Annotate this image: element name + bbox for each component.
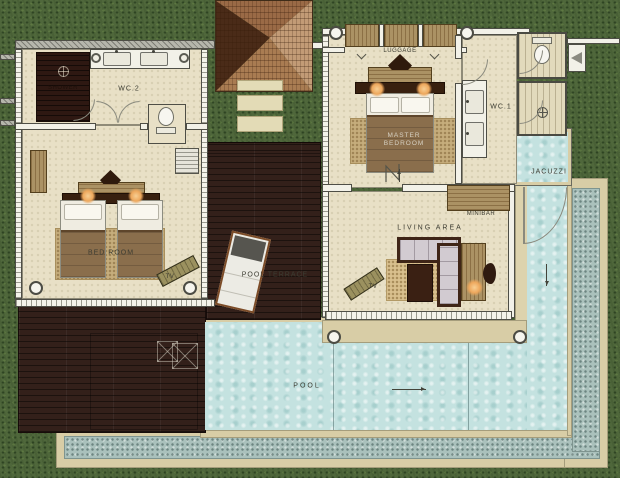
stepping-stone [237, 116, 283, 132]
sink-icon [140, 52, 168, 66]
toilet-tank [532, 37, 552, 44]
armchair [483, 263, 496, 284]
pool-lane-line [468, 343, 469, 430]
pillow [64, 204, 102, 220]
column [183, 281, 197, 295]
wall-divider [455, 83, 462, 184]
floor-plan: WC.2 SHOWER BED ROOM TV POOL TERRACE POO… [0, 0, 620, 478]
deck-hatch-mark [172, 343, 198, 369]
room-label-jacuzzi: JACUZZI [531, 169, 567, 176]
pavilion-roof [215, 0, 313, 92]
boundary-wall-stub [0, 98, 15, 104]
pebble-border-right [572, 188, 600, 452]
wall-segment [322, 47, 345, 53]
deck-step-line [207, 153, 320, 154]
sofa-side [437, 243, 461, 307]
wardrobe [423, 24, 457, 47]
room-label-master-bedroom: MASTER BEDROOM [376, 132, 432, 148]
room-label-bedroom: BED ROOM [88, 250, 134, 257]
window-wall-east [201, 49, 208, 299]
column [29, 281, 43, 295]
window-wall-west [322, 191, 329, 318]
faucet-icon [152, 50, 155, 53]
pool-coping-arm-right [567, 182, 572, 436]
pillow [370, 97, 399, 113]
room-label-living-area: LIVING AREA [397, 225, 463, 232]
pool-coping-bottom [200, 430, 572, 438]
bedside-lamp-icon [416, 81, 432, 97]
room-label-wc1: WC.1 [490, 104, 512, 111]
window-wall-west [322, 35, 329, 188]
pillow [401, 97, 430, 113]
room-label-pool: POOL [293, 383, 320, 390]
wall-north [15, 40, 215, 49]
column [460, 26, 474, 40]
pillow [121, 204, 159, 220]
wall-divider [322, 184, 352, 192]
pool-lane-line [333, 343, 334, 430]
table-lamp-icon [466, 279, 483, 296]
faucet-icon [466, 132, 469, 135]
living-terrace-edge [322, 320, 527, 343]
pool-water [205, 322, 327, 430]
pebble-border-bottom [64, 436, 600, 459]
room-label-minibar: MINIBAR [467, 211, 496, 217]
faucet-icon [115, 50, 118, 53]
wardrobe [384, 24, 418, 47]
bedside-lamp-icon [128, 188, 144, 204]
lounger-seam [220, 289, 255, 298]
toilet-icon [158, 107, 174, 126]
minibar-counter [447, 185, 510, 211]
wardrobe [345, 24, 379, 47]
boundary-wall-stub [0, 120, 15, 126]
flow-arrow-down [546, 264, 547, 286]
bedside-lamp-icon [369, 81, 385, 97]
shower-drain-icon [58, 66, 69, 77]
label-tv-bedroom: TV [166, 274, 175, 280]
lounger-headrest [231, 235, 267, 262]
stepping-stone [237, 80, 283, 91]
room-label-wc2: WC.2 [118, 86, 140, 93]
direction-arrow-up [399, 169, 400, 182]
faucet-icon [466, 100, 469, 103]
luggage-rack [175, 148, 199, 174]
column [329, 26, 343, 40]
wall-divider [140, 123, 148, 130]
wall-divider [15, 123, 96, 130]
wall-divider [186, 123, 208, 130]
column [513, 330, 527, 344]
vanity-knob [179, 53, 189, 63]
bedside-lamp-icon [80, 188, 96, 204]
bench [30, 150, 47, 193]
flow-arrow-right [392, 389, 426, 390]
boundary-wall-stub [0, 54, 15, 60]
wall-divider [455, 35, 462, 59]
stepping-stone [237, 95, 283, 111]
coffee-table [407, 264, 433, 302]
window-wall-south [15, 299, 215, 307]
room-label-luggage: LUGGAGE [383, 48, 416, 54]
window-wall-west [15, 49, 22, 299]
window-wall-south [325, 311, 512, 320]
column [327, 330, 341, 344]
room-label-pool-terrace: POOL TERRACE [242, 272, 308, 279]
label-tv-living: TV [369, 284, 378, 290]
toilet-tank [156, 127, 176, 134]
sink-icon [103, 52, 131, 66]
pool-door-leaf [523, 187, 525, 244]
room-label-shower: SHOWER [48, 85, 78, 91]
vanity-knob [91, 53, 101, 63]
louver-window-icon [571, 52, 582, 64]
